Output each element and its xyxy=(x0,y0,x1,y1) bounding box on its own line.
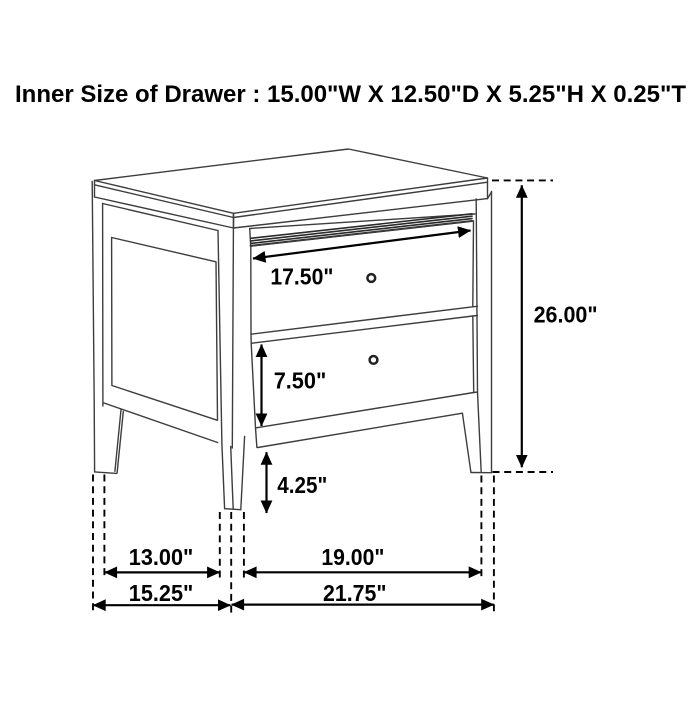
svg-text:26.00": 26.00" xyxy=(534,302,598,328)
svg-text:13.00": 13.00" xyxy=(129,544,194,570)
svg-text:7.50": 7.50" xyxy=(274,368,327,394)
svg-text:17.50": 17.50" xyxy=(270,264,333,290)
svg-text:Inner Size of Drawer : 15.00"W: Inner Size of Drawer : 15.00"W X 12.50"D… xyxy=(15,81,686,108)
svg-text:4.25": 4.25" xyxy=(277,472,327,498)
svg-text:15.25": 15.25" xyxy=(129,580,194,606)
svg-text:21.75": 21.75" xyxy=(323,580,387,606)
svg-text:19.00": 19.00" xyxy=(321,544,384,570)
